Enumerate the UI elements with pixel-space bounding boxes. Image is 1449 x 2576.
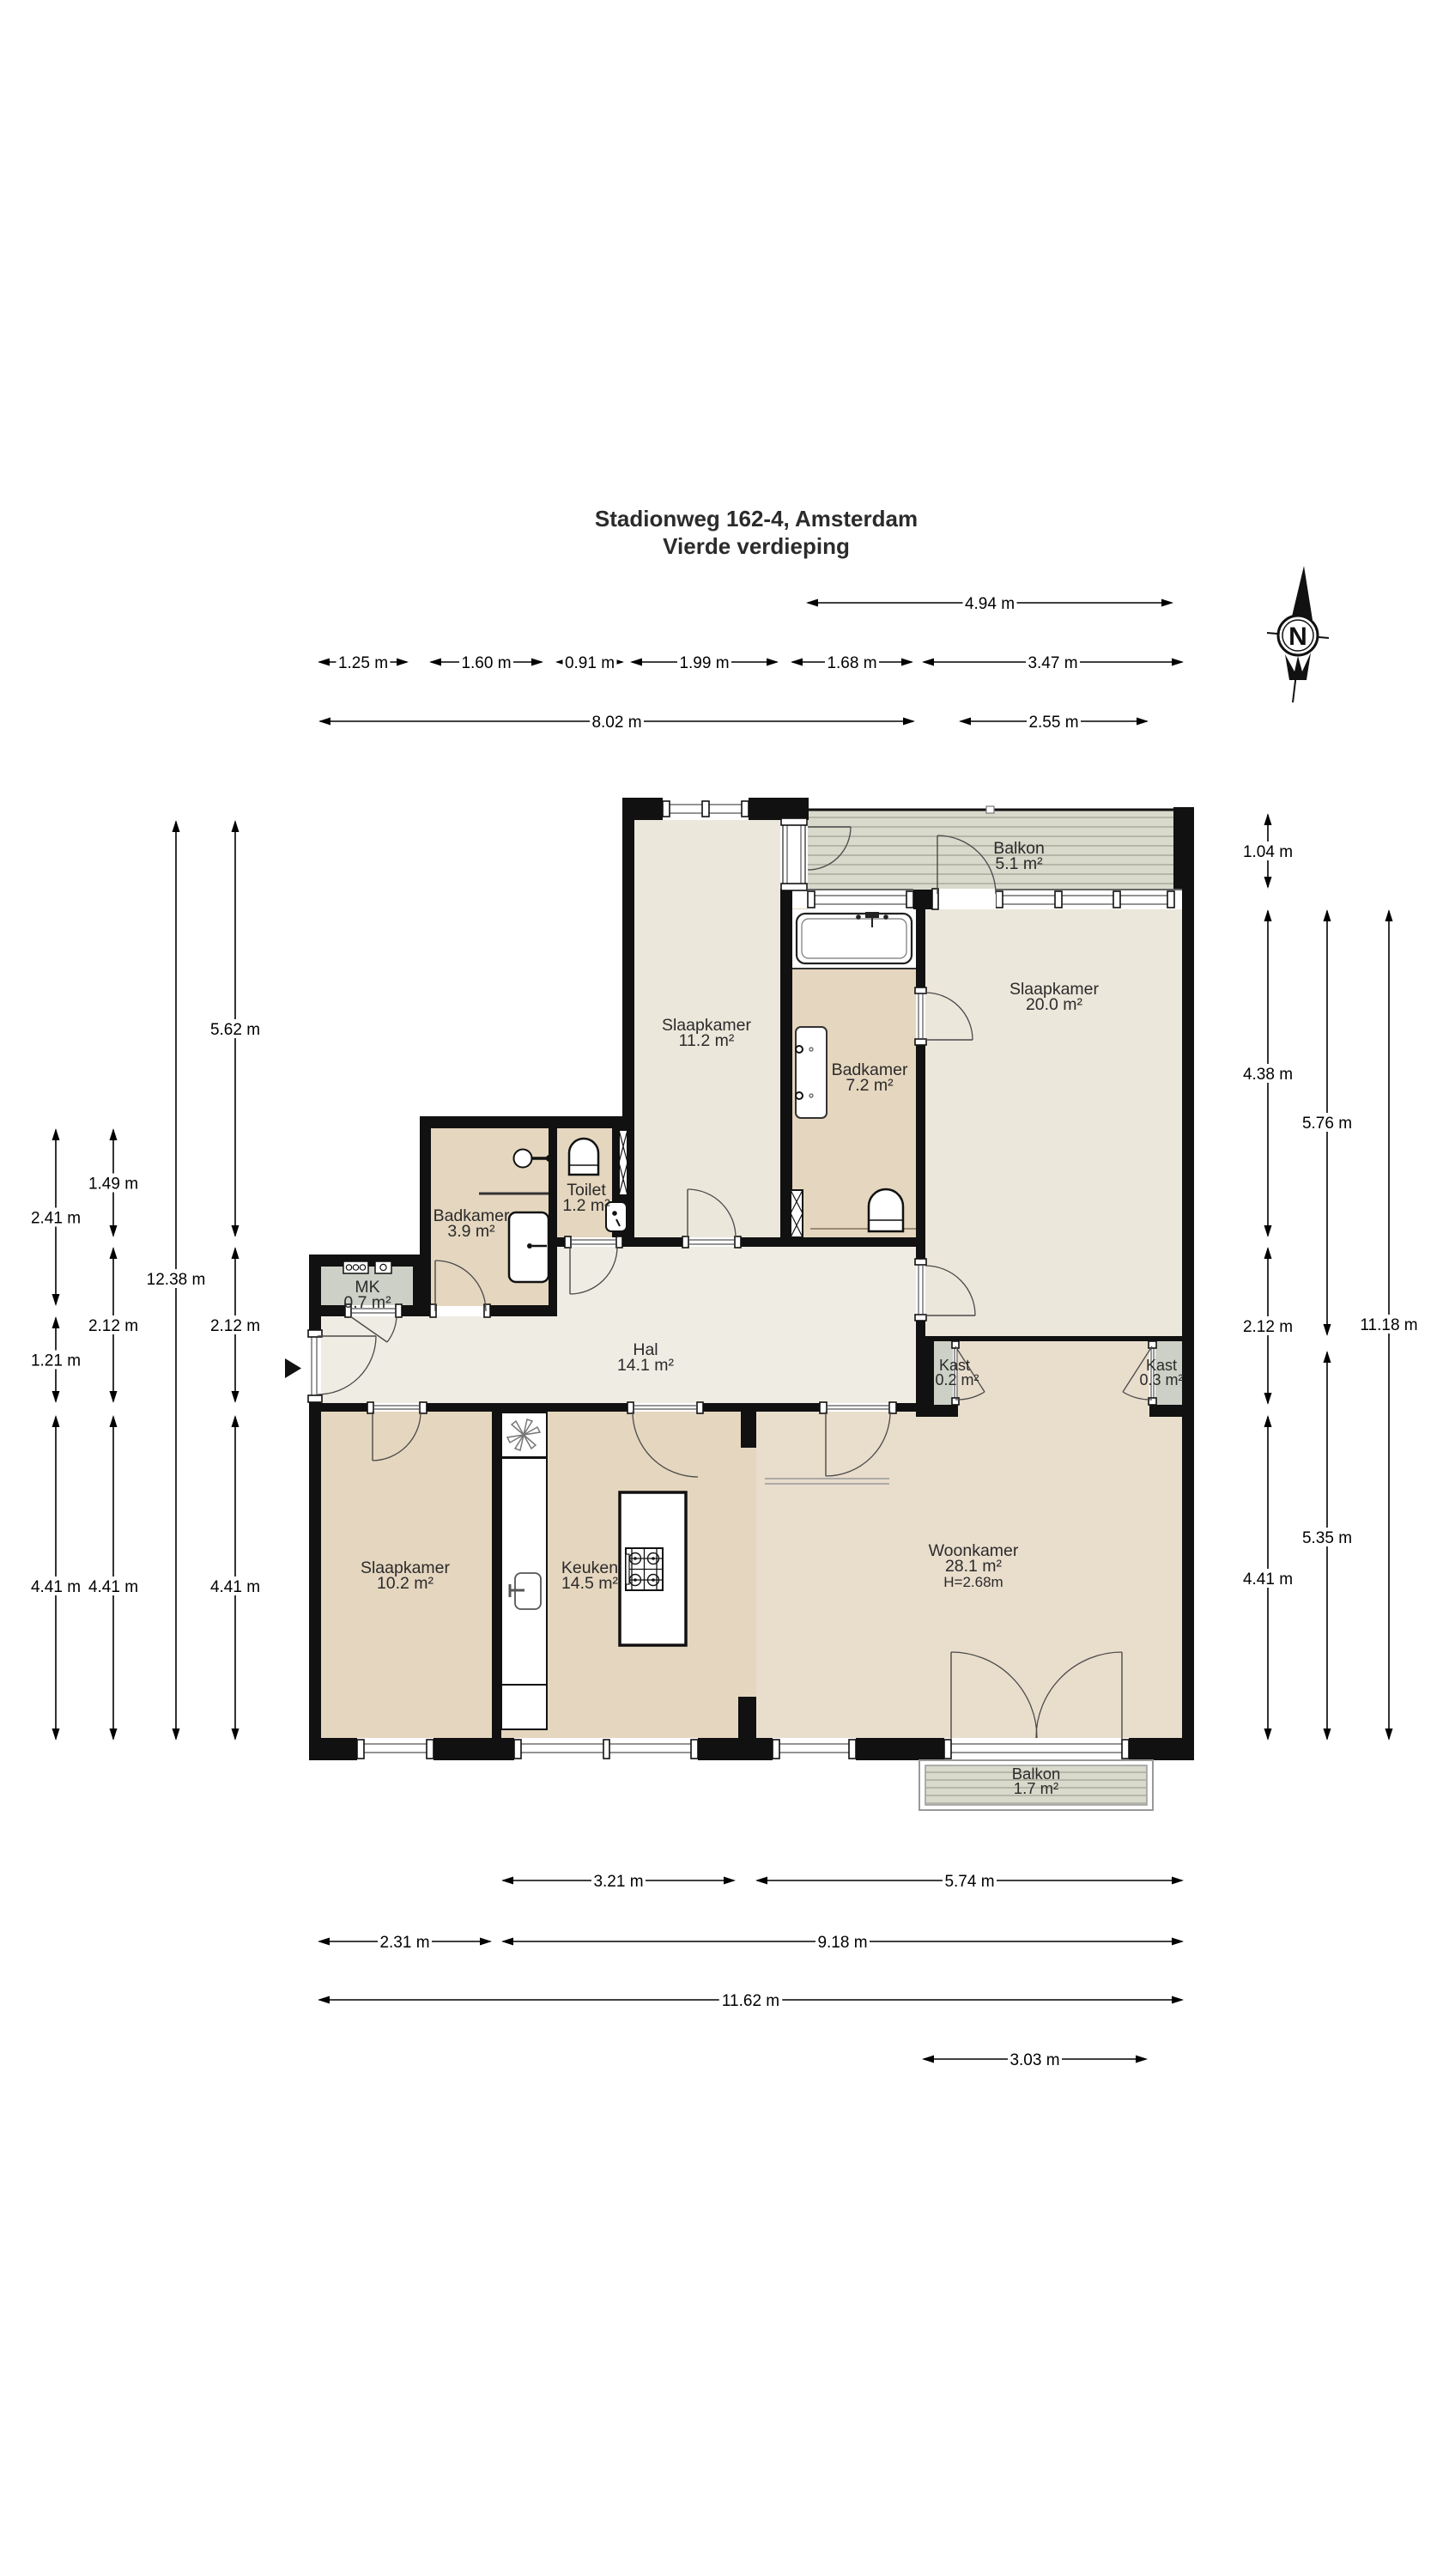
svg-text:Vierde verdieping: Vierde verdieping	[663, 533, 850, 559]
svg-text:N: N	[1288, 623, 1307, 651]
svg-text:5.1 m²: 5.1 m²	[995, 854, 1043, 873]
svg-text:H=2.68m: H=2.68m	[943, 1574, 1003, 1590]
svg-text:1.25 m: 1.25 m	[338, 654, 388, 672]
svg-text:2.55 m: 2.55 m	[1028, 714, 1078, 732]
svg-text:1.68 m: 1.68 m	[827, 654, 876, 672]
svg-text:3.03 m: 3.03 m	[1009, 2051, 1059, 2069]
svg-text:2.12 m: 2.12 m	[1243, 1318, 1293, 1336]
svg-text:0.7 m²: 0.7 m²	[343, 1293, 391, 1312]
svg-text:8.02 m: 8.02 m	[591, 714, 641, 732]
svg-text:Stadionweg 162-4, Amsterdam: Stadionweg 162-4, Amsterdam	[595, 506, 918, 532]
svg-text:1.04 m: 1.04 m	[1243, 843, 1293, 861]
svg-text:2.12 m: 2.12 m	[210, 1317, 260, 1335]
svg-text:11.18 m: 11.18 m	[1360, 1316, 1417, 1334]
svg-text:1.7 m²: 1.7 m²	[1014, 1779, 1058, 1797]
svg-text:5.62 m: 5.62 m	[210, 1021, 260, 1039]
svg-text:4.41 m: 4.41 m	[210, 1578, 260, 1596]
svg-text:1.49 m: 1.49 m	[88, 1176, 138, 1194]
svg-text:1.60 m: 1.60 m	[461, 654, 511, 672]
svg-text:5.35 m: 5.35 m	[1302, 1529, 1352, 1547]
svg-text:1.99 m: 1.99 m	[679, 654, 729, 672]
svg-text:0.91 m: 0.91 m	[565, 654, 615, 672]
svg-text:14.5 m²: 14.5 m²	[561, 1574, 619, 1593]
svg-text:4.38 m: 4.38 m	[1243, 1066, 1293, 1084]
svg-text:28.1 m²: 28.1 m²	[945, 1557, 1003, 1576]
svg-text:10.2 m²: 10.2 m²	[377, 1574, 434, 1593]
svg-text:4.94 m: 4.94 m	[965, 595, 1015, 613]
svg-text:2.31 m: 2.31 m	[379, 1934, 429, 1952]
svg-text:11.62 m: 11.62 m	[722, 1992, 779, 2010]
svg-text:3.47 m: 3.47 m	[1028, 654, 1077, 672]
svg-text:3.21 m: 3.21 m	[593, 1873, 643, 1891]
svg-text:5.74 m: 5.74 m	[944, 1873, 994, 1891]
svg-text:4.41 m: 4.41 m	[1243, 1571, 1293, 1589]
svg-text:0.3 m²: 0.3 m²	[1139, 1371, 1183, 1388]
svg-text:2.41 m: 2.41 m	[31, 1210, 81, 1228]
svg-text:1.2 m²: 1.2 m²	[562, 1196, 610, 1215]
svg-text:14.1 m²: 14.1 m²	[617, 1356, 675, 1375]
svg-text:9.18 m: 9.18 m	[817, 1934, 867, 1952]
svg-text:7.2 m²: 7.2 m²	[846, 1076, 894, 1095]
svg-text:2.12 m: 2.12 m	[88, 1317, 138, 1335]
svg-text:5.76 m: 5.76 m	[1302, 1115, 1352, 1133]
svg-text:20.0 m²: 20.0 m²	[1026, 995, 1083, 1014]
svg-text:11.2 m²: 11.2 m²	[679, 1031, 735, 1050]
svg-text:1.21 m: 1.21 m	[31, 1352, 81, 1370]
svg-text:12.38 m: 12.38 m	[147, 1271, 206, 1289]
svg-text:0.2 m²: 0.2 m²	[935, 1371, 979, 1388]
svg-text:3.9 m²: 3.9 m²	[447, 1222, 495, 1241]
svg-text:4.41 m: 4.41 m	[88, 1578, 138, 1596]
svg-text:4.41 m: 4.41 m	[31, 1578, 81, 1596]
